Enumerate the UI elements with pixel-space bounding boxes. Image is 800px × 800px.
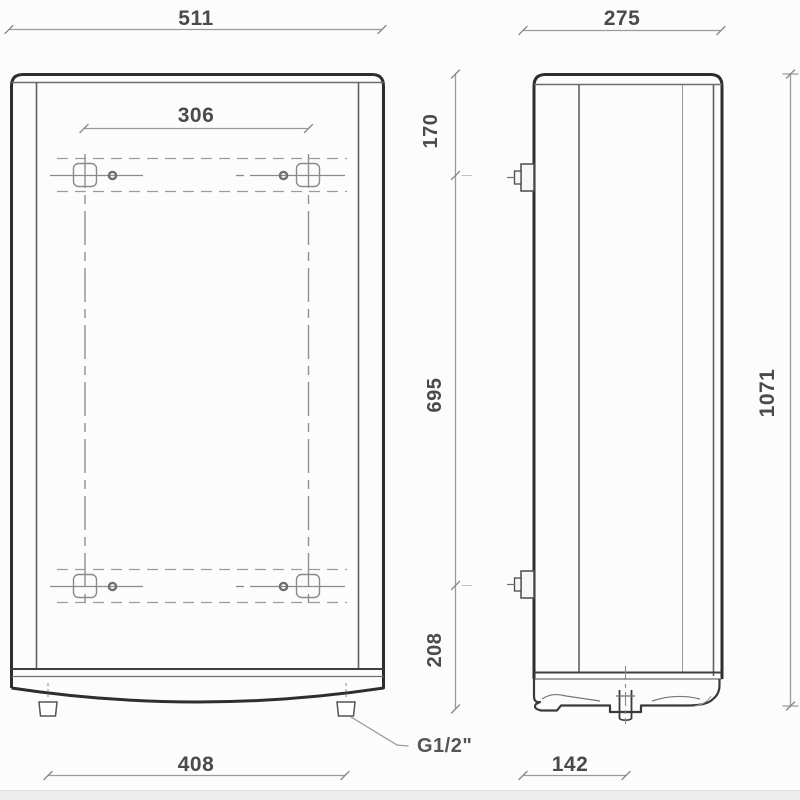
dimension-bracket-hole-spacing: 306 (80, 104, 313, 133)
bracket-tab-lip (515, 578, 522, 591)
dim-text-208: 208 (424, 633, 446, 668)
dim-text-408: 408 (178, 753, 215, 776)
dimensions: 511 306 408 G1/2" 275 (5, 7, 798, 780)
dimension-total-height: 1071 (756, 70, 798, 710)
dim-text-511: 511 (178, 7, 213, 30)
front-body-outline (12, 75, 384, 703)
front-right-foot (337, 702, 355, 716)
side-body-outline (534, 75, 722, 680)
front-lower-mounting-rail (50, 570, 347, 603)
side-bottom-inner-seam-left (542, 695, 600, 701)
pipe-thread-label: G1/2" (417, 735, 472, 757)
front-upper-mounting-rail (50, 159, 347, 192)
dim-text-142: 142 (552, 753, 589, 776)
dimension-side-depth-top: 275 (519, 7, 725, 35)
side-lower-wall-bracket (507, 571, 534, 598)
bracket-tab (521, 164, 534, 191)
bracket-tab (521, 571, 534, 598)
dim-text-306: 306 (178, 104, 215, 127)
dimension-pipe-offset: 142 (519, 753, 630, 780)
side-upper-wall-bracket (507, 164, 534, 191)
side-bottom-inner-seam-right (652, 696, 700, 701)
dimension-front-width-top: 511 (5, 7, 386, 34)
front-view (12, 75, 384, 717)
water-heater-dimension-drawing: 511 306 408 G1/2" 275 (0, 0, 800, 800)
dim-text-695: 695 (424, 378, 446, 413)
side-pipe-stub (616, 666, 635, 724)
side-view (507, 75, 722, 725)
dimension-height-segments: 170 695 208 (420, 70, 472, 713)
front-left-foot (39, 702, 57, 716)
pipe-connection-callout: G1/2" (351, 717, 472, 757)
leader-line (351, 717, 408, 746)
bracket-tab-lip (515, 171, 522, 184)
dim-text-1071: 1071 (756, 369, 779, 418)
technical-drawing-canvas: 511 306 408 G1/2" 275 (0, 0, 800, 800)
dimension-feet-spacing: 408 (44, 753, 349, 780)
dim-text-275: 275 (604, 7, 641, 30)
scan-artifact-strip (0, 790, 800, 800)
dim-text-170: 170 (420, 114, 442, 149)
